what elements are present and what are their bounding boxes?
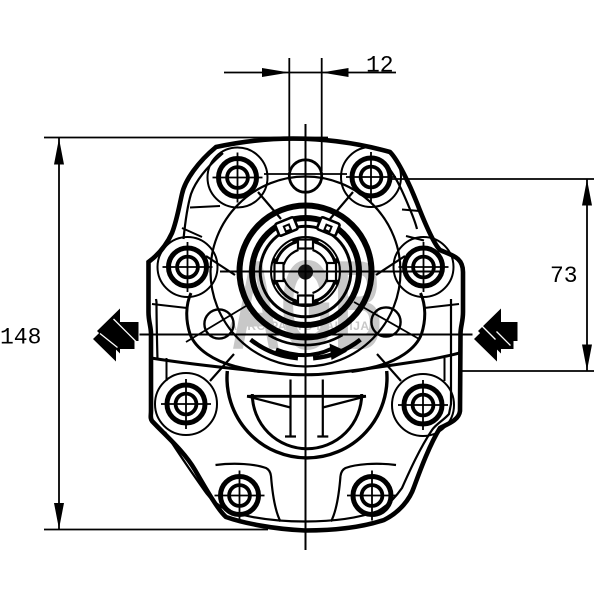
svg-text:148: 148 <box>0 325 41 351</box>
svg-text:73: 73 <box>550 263 578 289</box>
svg-text:12: 12 <box>366 53 394 79</box>
